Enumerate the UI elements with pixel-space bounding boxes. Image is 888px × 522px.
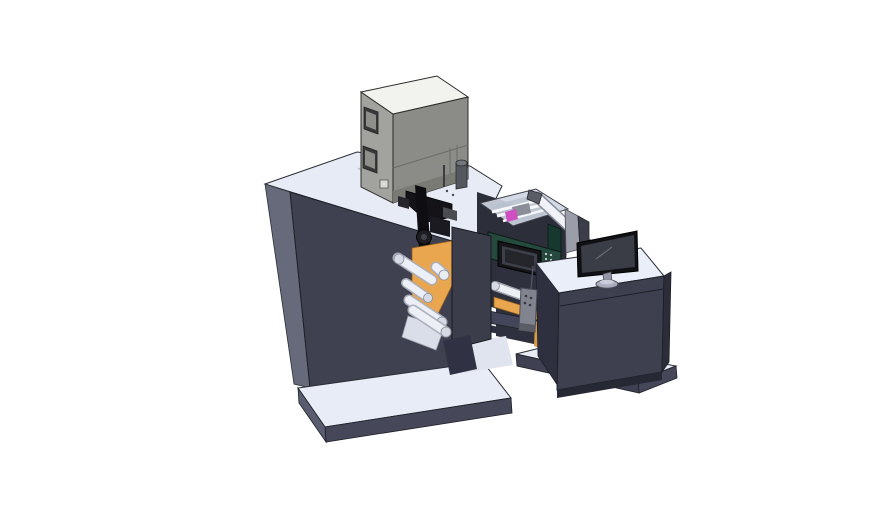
roller-1-cap <box>394 254 404 264</box>
roller-4-cap <box>441 327 451 337</box>
roller-stub-cap <box>439 270 449 280</box>
control-button-1 <box>545 253 547 255</box>
electrical-box-foot <box>380 180 388 188</box>
pendant-button-1 <box>525 295 528 298</box>
cad-render-canvas <box>0 0 888 522</box>
beacon-top <box>456 160 467 166</box>
desk-front-face <box>557 276 664 390</box>
roller-2-cap <box>424 294 433 303</box>
web-roller-cap <box>491 282 500 291</box>
control-button-2 <box>550 254 552 256</box>
machine-svg <box>0 0 888 522</box>
control-button-3 <box>545 258 547 260</box>
monitor-base-top <box>600 280 614 285</box>
pendant-button-2 <box>530 297 533 300</box>
print-head-eye-inner <box>421 234 427 240</box>
pendant-button-4 <box>529 304 532 307</box>
pendant-button-3 <box>524 302 527 305</box>
center-column <box>452 227 491 349</box>
cabinet-top-dot-2 <box>446 190 448 192</box>
cabinet-top-dot-3 <box>452 194 454 196</box>
